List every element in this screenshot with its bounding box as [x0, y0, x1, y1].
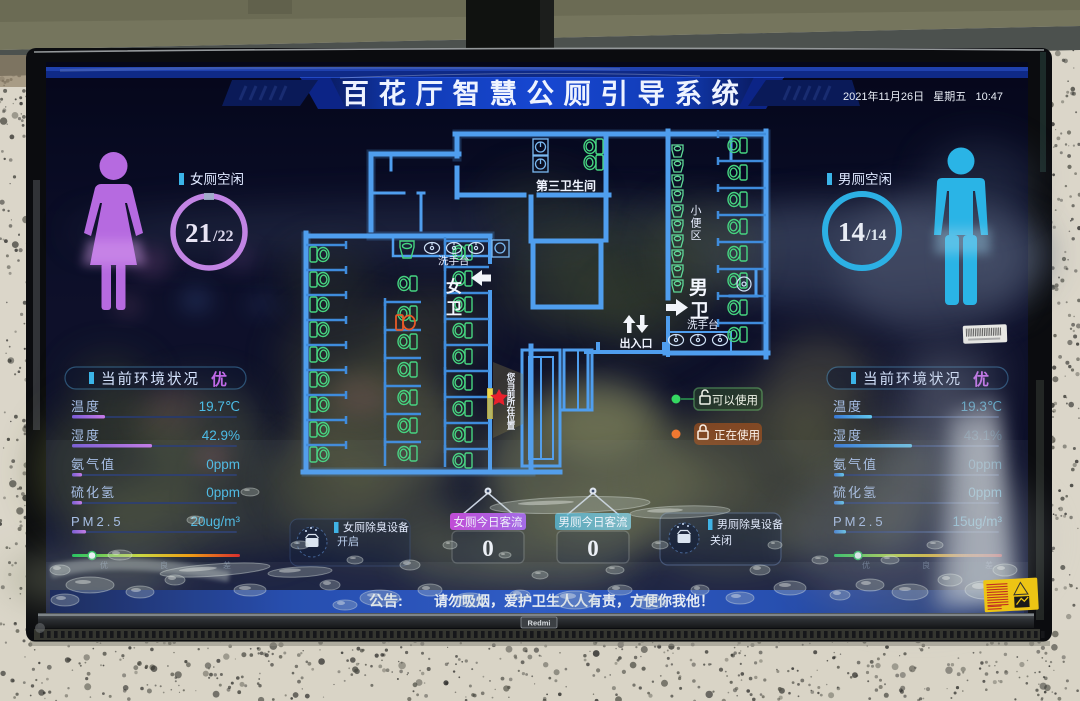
svg-text:您当前所在位置: 您当前所在位置: [506, 372, 516, 431]
svg-text:正在使用: 正在使用: [714, 428, 760, 442]
svg-text:第三卫生间: 第三卫生间: [536, 178, 596, 193]
svg-text:/22: /22: [212, 228, 233, 245]
svg-text:优: 优: [211, 370, 227, 389]
svg-text:/14: /14: [865, 227, 886, 244]
svg-text:21: 21: [185, 218, 212, 248]
svg-text:洗手台: 洗手台: [438, 254, 470, 267]
svg-text:小便区: 小便区: [691, 204, 702, 242]
svg-text:百花厅智慧公厕引导系统: 百花厅智慧公厕引导系统: [342, 78, 749, 109]
svg-text:14: 14: [838, 217, 865, 247]
svg-text:温度: 温度: [71, 399, 101, 414]
svg-text:出入口: 出入口: [620, 336, 653, 350]
svg-text:女厕空闲: 女厕空闲: [190, 171, 244, 187]
svg-text:Redmi: Redmi: [528, 619, 551, 628]
svg-text:温度: 温度: [833, 399, 863, 414]
svg-text:女: 女: [446, 277, 462, 296]
svg-text:19.7℃: 19.7℃: [199, 399, 240, 414]
svg-text:男: 男: [689, 277, 708, 299]
svg-text:洗手台: 洗手台: [687, 318, 719, 331]
svg-text:男厕空闲: 男厕空闲: [838, 172, 892, 187]
svg-text:当前环境状况: 当前环境状况: [101, 370, 200, 388]
svg-text:可以使用: 可以使用: [712, 393, 758, 407]
svg-text:卫: 卫: [446, 301, 462, 318]
svg-text:2021年11月26日 星期五 10:47: 2021年11月26日 星期五 10:47: [843, 89, 1003, 103]
